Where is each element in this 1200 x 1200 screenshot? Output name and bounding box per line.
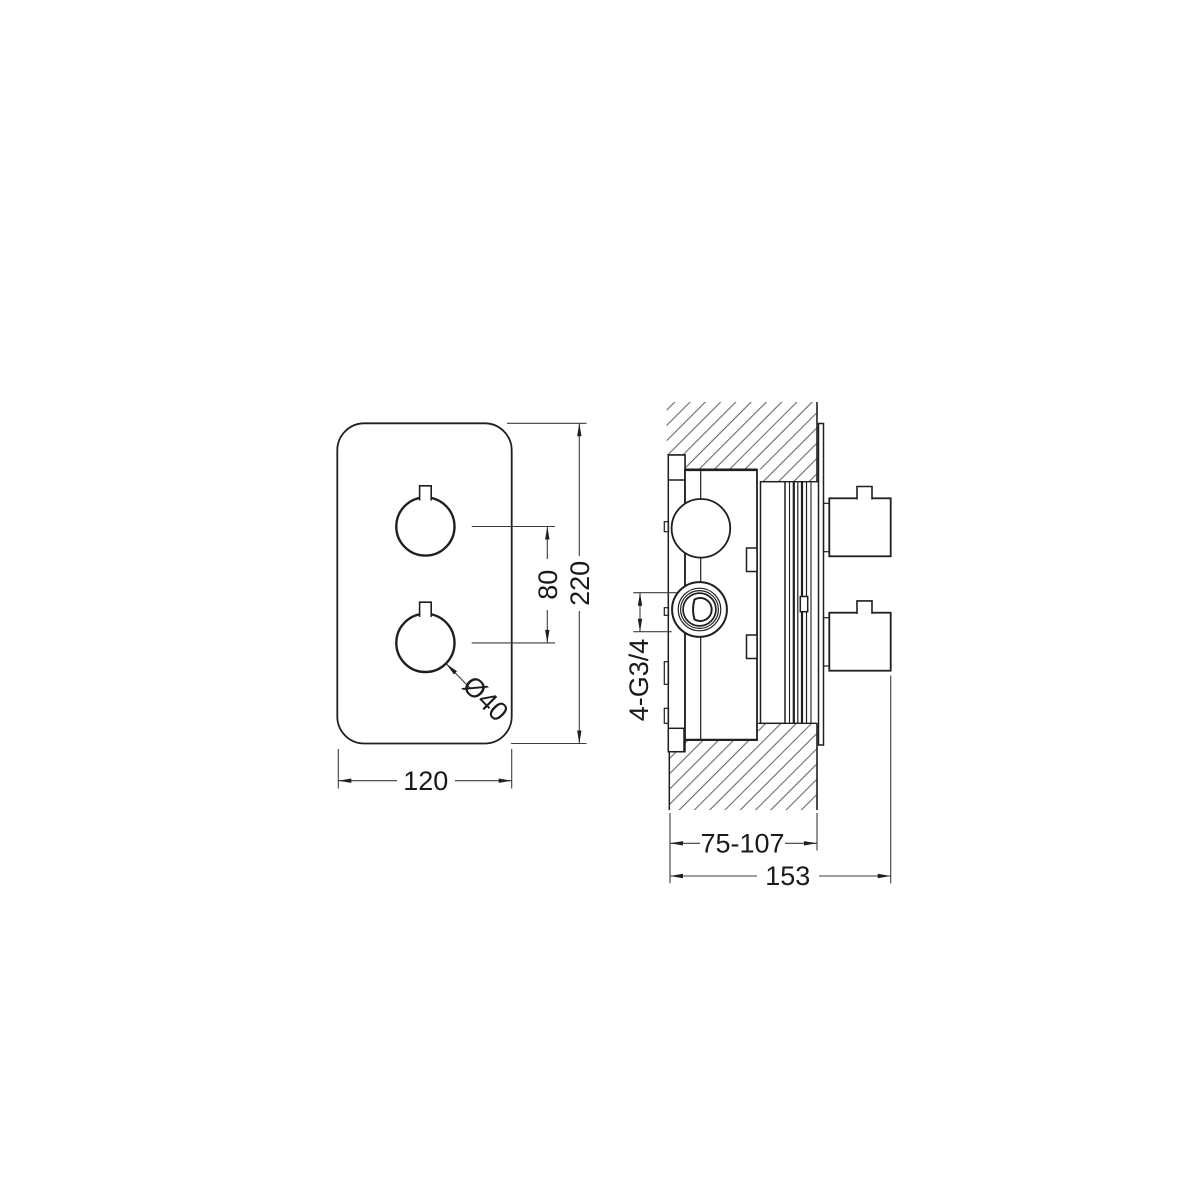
upper-handle-side-tab: [857, 487, 872, 500]
layer-clip: [800, 597, 807, 612]
drawing-canvas: 220 80 120 Ø40: [0, 0, 1200, 1200]
side-view: 4-G3/4 75-107 153: [624, 402, 891, 891]
faceplate-side: [819, 424, 824, 746]
upper-handle-index-tab: [420, 486, 432, 501]
port-thread-opening: [693, 598, 712, 621]
front-view: 220 80 120 Ø40: [337, 423, 595, 796]
mounting-lug-top: [668, 455, 685, 480]
upper-handle-side: [824, 487, 891, 557]
lower-handle-body: [829, 613, 890, 671]
upper-handle-circle: [396, 497, 454, 555]
recess-box: [761, 482, 786, 724]
total-depth-label: 153: [765, 861, 810, 891]
side-clip-lower: [747, 635, 758, 659]
plate-height-label: 220: [565, 561, 595, 606]
inlet-port: [672, 582, 727, 637]
cartridge-circle: [672, 499, 731, 558]
upper-handle-body: [829, 498, 890, 556]
dim-plate-width: 120: [338, 749, 511, 796]
mounting-lug-bottom: [668, 728, 684, 751]
recess-depth-label: 75-107: [700, 829, 784, 859]
lower-handle-index-tab: [420, 602, 432, 617]
handle-spacing-label: 80: [533, 570, 563, 600]
lower-handle-side: [824, 601, 891, 671]
side-clip-upper: [747, 548, 758, 572]
connection-thread-label: 4-G3/4: [624, 639, 654, 722]
plate-width-label: 120: [403, 766, 448, 796]
lower-handle-side-tab: [857, 601, 872, 614]
lower-handle-circle: [396, 614, 454, 672]
dim-recess-depth: 75-107: [670, 813, 817, 859]
valve-dimension-drawing: 220 80 120 Ø40: [0, 0, 1200, 1200]
depth-adjust-layers: [790, 482, 812, 724]
valve-body: [664, 455, 785, 752]
